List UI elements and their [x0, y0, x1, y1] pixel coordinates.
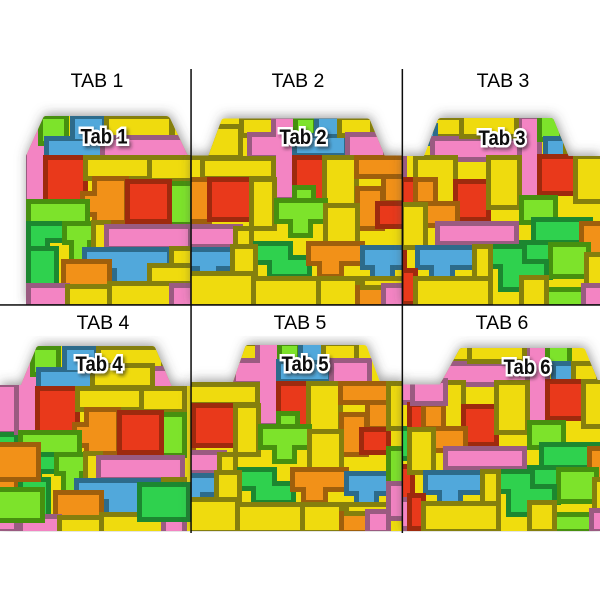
svg-text:Tab 3: Tab 3	[479, 126, 526, 150]
svg-text:TAB 4: TAB 4	[77, 312, 130, 334]
svg-text:TAB 3: TAB 3	[477, 70, 530, 92]
svg-text:Tab 6: Tab 6	[504, 355, 551, 379]
svg-text:TAB 5: TAB 5	[274, 312, 327, 334]
svg-text:TAB 6: TAB 6	[476, 312, 529, 334]
svg-text:Tab 5: Tab 5	[282, 352, 329, 376]
svg-text:TAB 2: TAB 2	[272, 70, 325, 92]
svg-text:Tab 4: Tab 4	[76, 352, 123, 376]
svg-text:Tab 1: Tab 1	[81, 125, 128, 149]
svg-text:TAB 1: TAB 1	[71, 70, 124, 92]
svg-text:Tab 2: Tab 2	[280, 125, 327, 149]
